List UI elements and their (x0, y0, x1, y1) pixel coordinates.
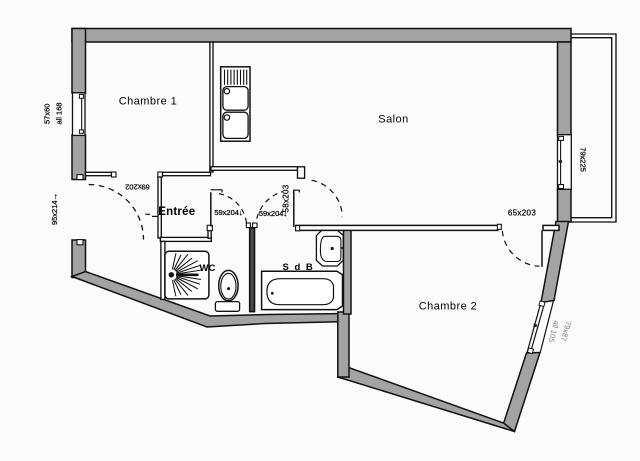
svg-text:S d B: S d B (283, 262, 315, 273)
svg-text:all 168: all 168 (55, 102, 64, 124)
svg-text:Salon: Salon (378, 114, 408, 126)
svg-text:65x203: 65x203 (508, 208, 537, 217)
svg-text:57x60: 57x60 (43, 104, 52, 124)
svg-text:69x202: 69x202 (125, 182, 150, 191)
svg-text:Chambre 1: Chambre 1 (119, 96, 177, 108)
svg-text:59x204↓: 59x204↓ (214, 208, 242, 217)
svg-text:79x225: 79x225 (579, 147, 588, 172)
svg-text:WC: WC (199, 263, 215, 274)
svg-text:58x203: 58x203 (282, 184, 291, 212)
svg-text:Entrée: Entrée (158, 206, 195, 218)
svg-text:Chambre 2: Chambre 2 (419, 300, 477, 312)
svg-text:95x214→: 95x214→ (50, 193, 59, 225)
